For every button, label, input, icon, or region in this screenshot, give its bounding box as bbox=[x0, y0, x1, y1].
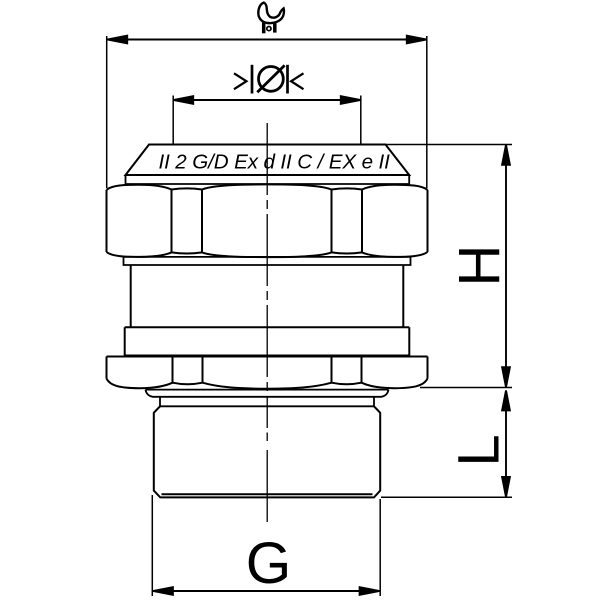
svg-text:H: H bbox=[447, 245, 512, 287]
svg-text:G: G bbox=[246, 531, 292, 596]
svg-text:II 2 G/D Ex d II C / EX e II: II 2 G/D Ex d II C / EX e II bbox=[159, 151, 391, 174]
svg-text:L: L bbox=[447, 434, 512, 466]
